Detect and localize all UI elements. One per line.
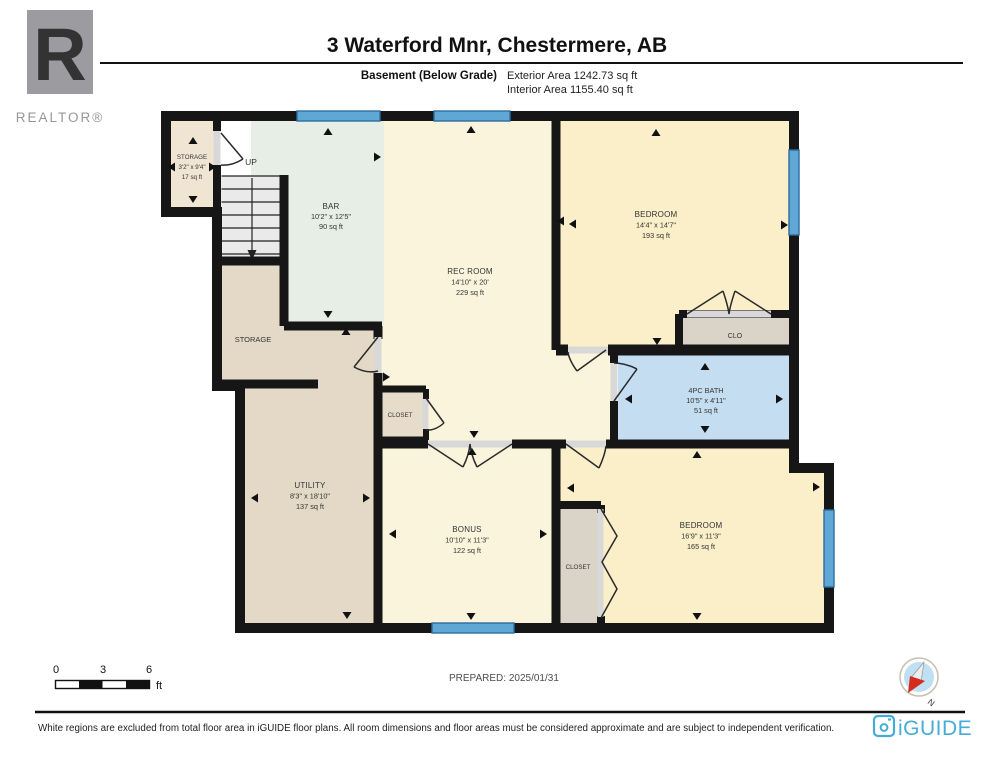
window — [824, 510, 834, 587]
realtor-logo-r-icon: R — [33, 13, 86, 96]
room-area: 90 sq ft — [319, 222, 343, 231]
room-name: REC ROOM — [447, 267, 493, 276]
room-name: UTILITY — [294, 481, 326, 490]
room-area: 229 sq ft — [456, 288, 484, 297]
interior-area: Interior Area 1155.40 sq ft — [507, 84, 633, 96]
compass-north-label: N — [926, 697, 937, 709]
closet-bedroom2-label: CLOSET — [566, 564, 591, 571]
room-dims: 10'10" x 11'3" — [445, 536, 489, 545]
iguide-logo-text: iGUIDE — [898, 717, 972, 740]
room-dims: 10'5" x 4'11" — [686, 396, 726, 405]
clo-label: CLO — [728, 333, 743, 340]
floor-plan-canvas: R REALTOR® 3 Waterford Mnr, Chestermere,… — [0, 0, 993, 768]
scale-unit: ft — [156, 680, 162, 692]
room-area: 51 sq ft — [694, 406, 718, 415]
iguide-logo: iGUIDE — [874, 716, 972, 740]
stairs — [222, 176, 284, 261]
room-name: BEDROOM — [680, 521, 723, 530]
room-name: BEDROOM — [635, 210, 678, 219]
footer: 0 3 6 ft PREPARED: 2025/01/31 N White re… — [35, 658, 972, 740]
room-area: 137 sq ft — [296, 502, 324, 511]
scale-tick-0: 0 — [53, 664, 59, 676]
stair-landing — [221, 120, 251, 177]
scale-bar: 0 3 6 ft — [53, 664, 162, 692]
room-name: BAR — [322, 202, 339, 211]
room-name: BONUS — [452, 525, 481, 534]
room-clo-area — [683, 317, 790, 345]
room-dims: 10'2" x 12'5" — [311, 212, 351, 221]
room-dims: 8'3" x 18'10" — [290, 492, 330, 501]
window — [432, 623, 514, 633]
prepared-date: PREPARED: 2025/01/31 — [449, 673, 559, 684]
room-dims: 16'9" x 11'3" — [681, 532, 721, 541]
scale-tick-3: 3 — [100, 664, 106, 676]
up-label: UP — [245, 157, 257, 167]
window — [297, 111, 380, 121]
exterior-area: Exterior Area 1242.73 sq ft — [507, 70, 637, 82]
floor-label: Basement (Below Grade) — [361, 70, 497, 82]
room-area: 17 sq ft — [182, 174, 203, 181]
storage-big-label: STORAGE — [235, 335, 272, 344]
window — [789, 150, 799, 235]
disclaimer-text: White regions are excluded from total fl… — [38, 723, 834, 734]
floor-plan-page: R REALTOR® 3 Waterford Mnr, Chestermere,… — [0, 0, 993, 768]
compass: N — [900, 658, 938, 708]
realtor-logo-text: REALTOR® — [16, 110, 104, 125]
iguide-logo-lens-icon — [881, 724, 888, 731]
room-area: 165 sq ft — [687, 542, 715, 551]
room-area: 193 sq ft — [642, 231, 670, 240]
header: R REALTOR® 3 Waterford Mnr, Chestermere,… — [16, 10, 963, 125]
room-dims: 14'4" x 14'7" — [636, 221, 676, 230]
room-dims: 14'10" x 20' — [451, 278, 489, 287]
scale-tick-6: 6 — [146, 664, 152, 676]
room-dims: 3'2" x 9'4" — [178, 164, 205, 171]
room-area: 122 sq ft — [453, 546, 481, 555]
page-title: 3 Waterford Mnr, Chestermere, AB — [327, 34, 667, 57]
room-name: STORAGE — [177, 154, 207, 161]
closet-small-label: CLOSET — [388, 412, 413, 419]
window — [434, 111, 510, 121]
room-name: 4PC BATH — [688, 386, 723, 395]
